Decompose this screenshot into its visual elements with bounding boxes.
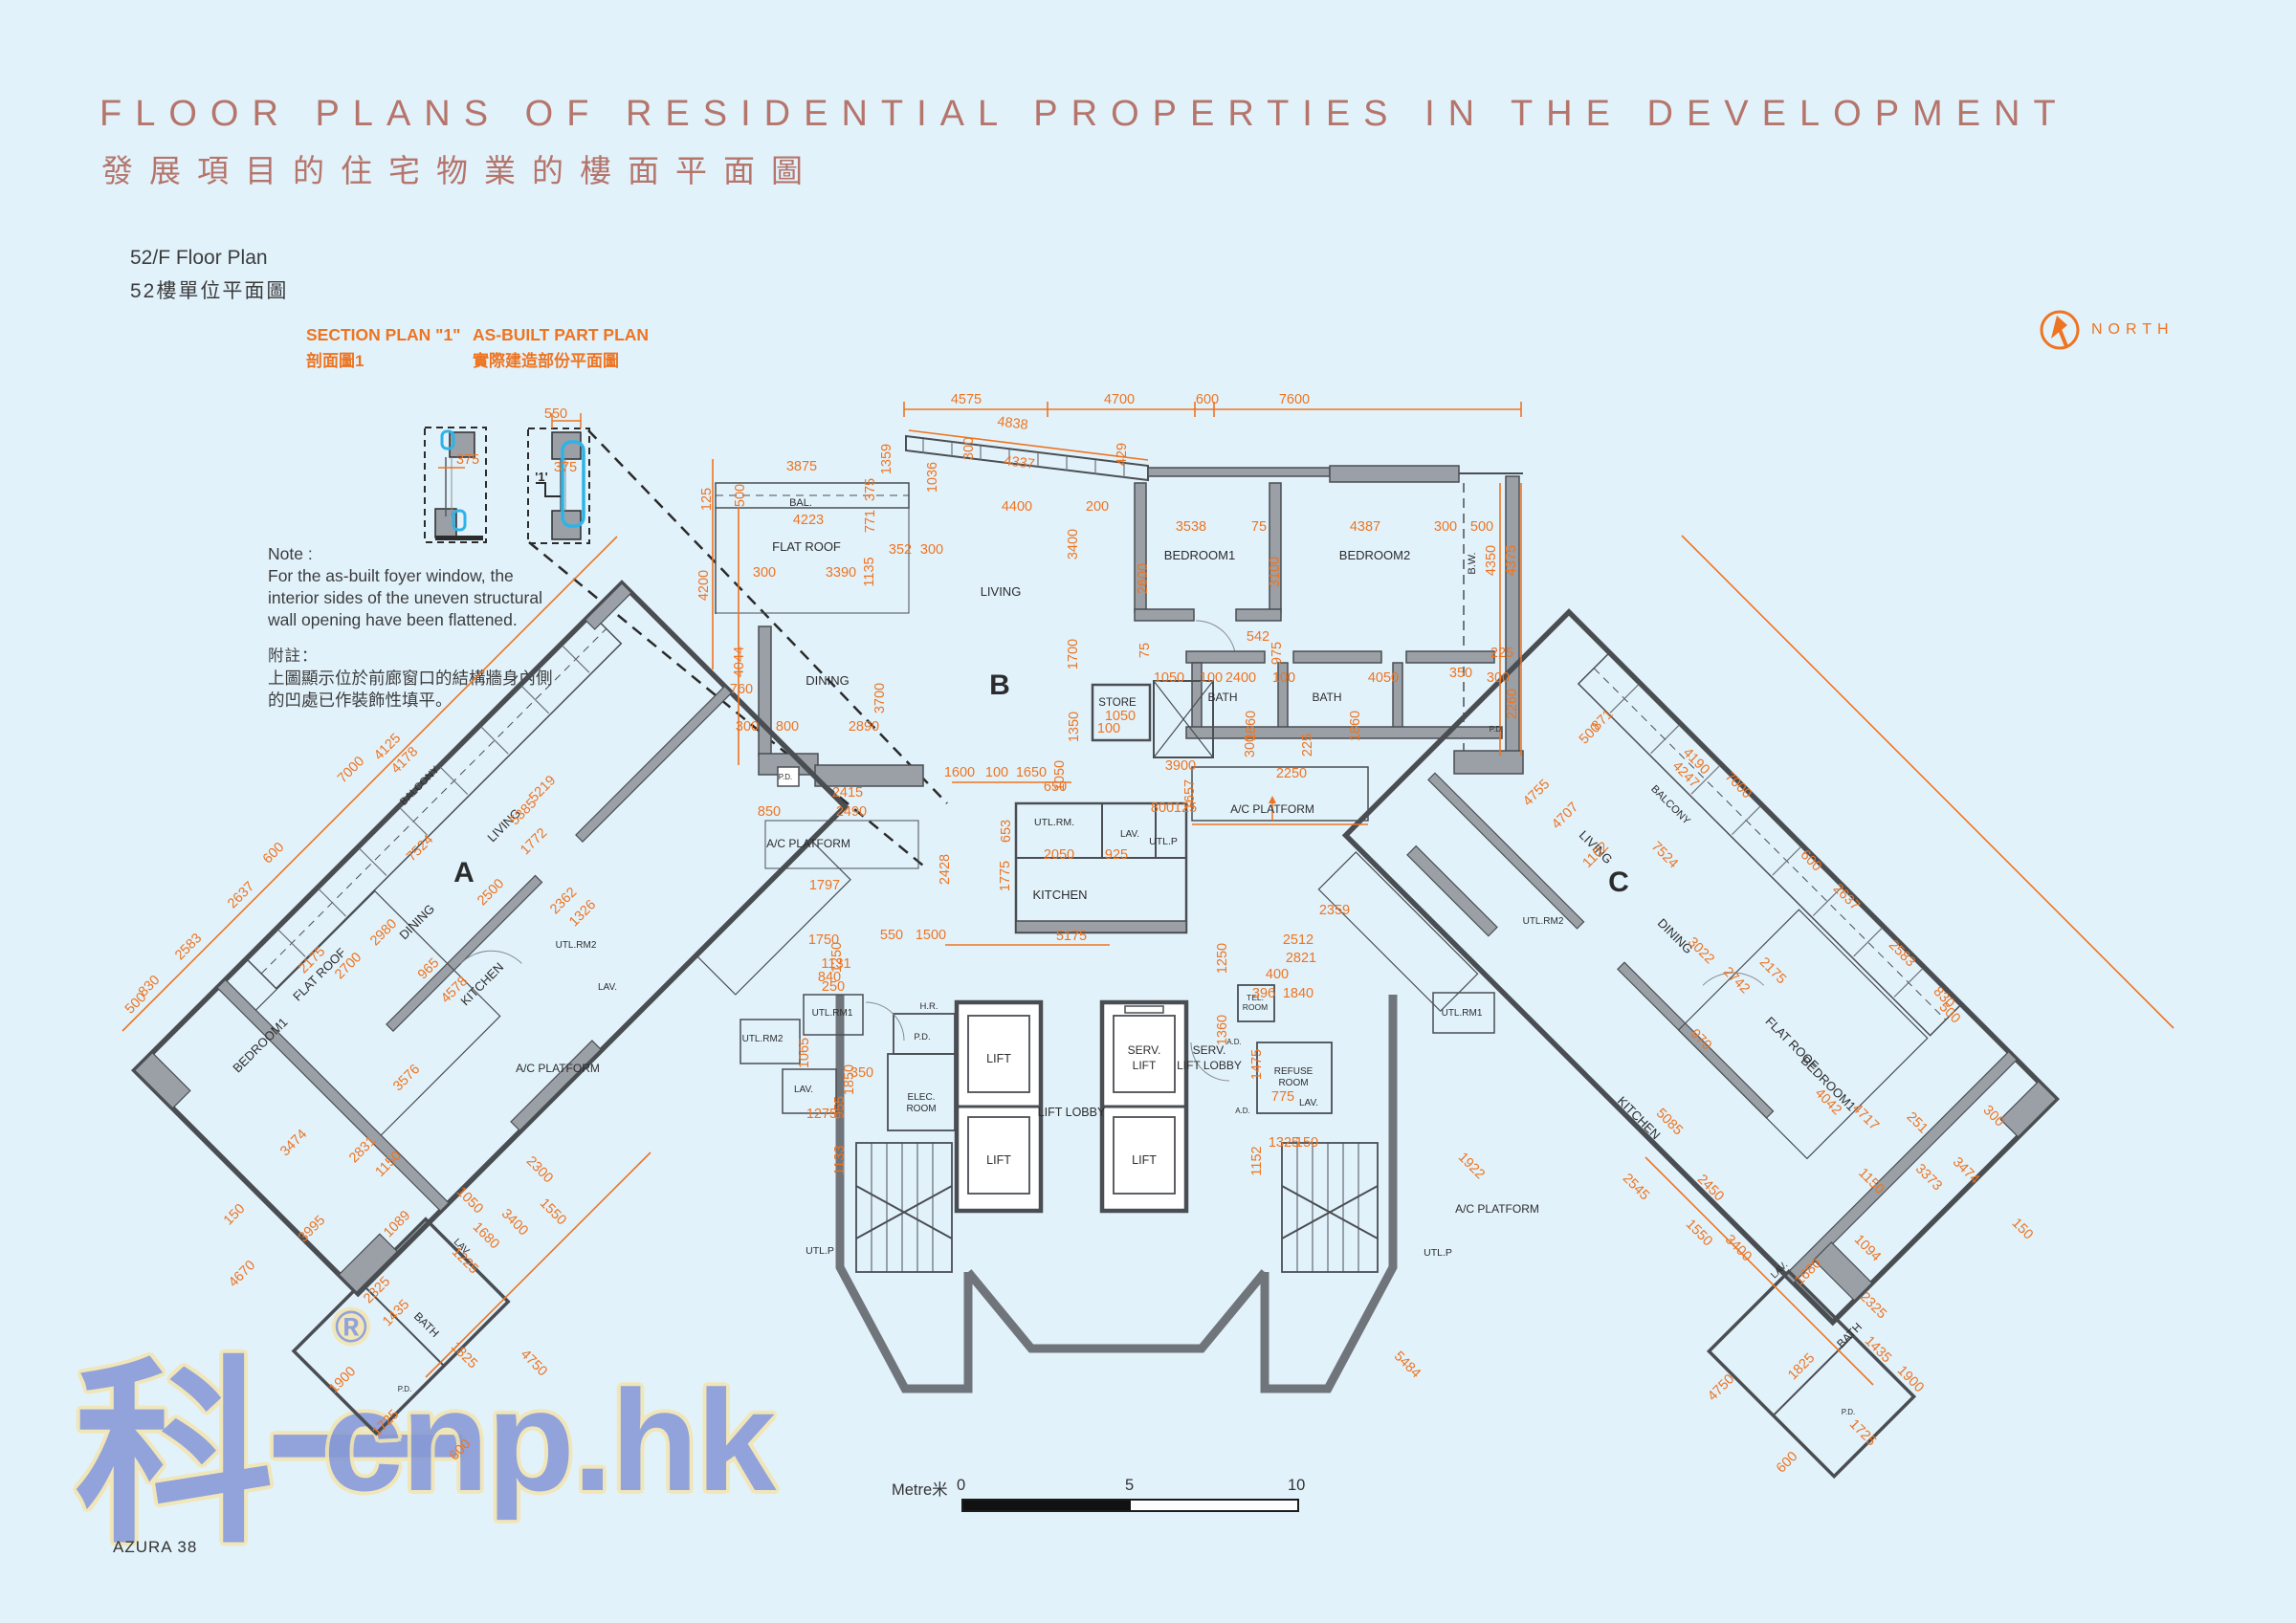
room-label: BATH <box>1834 1320 1865 1350</box>
dim-label: 1359 <box>879 444 894 474</box>
room-label: SERV. <box>1128 1043 1161 1057</box>
dim-label: 4400 <box>1002 499 1032 515</box>
dim-label: 2325 <box>1857 1289 1889 1322</box>
dim-label: 2512 <box>1283 932 1314 948</box>
dim-label: 5219 <box>526 773 559 805</box>
room-label: FLAT ROOF <box>772 539 841 554</box>
dim-label: 1435 <box>380 1297 412 1329</box>
dim-label: 2600 <box>1136 563 1151 594</box>
dim-label: 600 <box>260 840 287 866</box>
dim-label: 300 <box>1434 519 1457 535</box>
dim-label: 1657 <box>1182 779 1198 810</box>
dim-label: 375 <box>863 478 878 501</box>
scale-bar <box>961 1499 1299 1512</box>
dim-label: 3995 <box>296 1213 328 1245</box>
room-label: A <box>453 857 475 888</box>
dim-label: 1050 <box>453 1184 486 1217</box>
scale-bar-fill <box>963 1501 1131 1510</box>
dim-label: 3700 <box>872 683 888 713</box>
dim-label: 4707 <box>1549 800 1581 832</box>
dim-label: 251 <box>1904 1109 1931 1136</box>
dim-label: 1135 <box>862 557 877 586</box>
room-label: UTL.RM2 <box>1523 916 1564 927</box>
room-label: BATH <box>411 1309 442 1340</box>
dim-label: 2400 <box>1225 670 1256 686</box>
dim-label: 2980 <box>367 916 400 949</box>
dim-label: 350 <box>850 1065 873 1081</box>
project-name: AZURA 38 <box>113 1538 197 1557</box>
dim-label: 2742 <box>1720 964 1753 997</box>
room-label: BALCONY <box>1648 783 1692 827</box>
dim-label: 2250 <box>1276 766 1307 781</box>
dim-label: 2300 <box>523 1153 556 1186</box>
dim-label: 4050 <box>1368 670 1399 686</box>
dim-label: 75 <box>1137 643 1153 658</box>
room-label: STORE <box>1098 697 1137 709</box>
dim-label: 1225 <box>449 1244 481 1277</box>
room-label: ROOM <box>906 1104 936 1114</box>
dim-label: 550 <box>880 928 903 943</box>
dim-label: 396 <box>1252 986 1275 1001</box>
dim-label: 2821 <box>1286 951 1316 966</box>
dim-label: 375 <box>456 452 479 468</box>
scale-tick-5: 5 <box>1125 1477 1134 1495</box>
room-label: LIFT <box>1133 1059 1157 1072</box>
dim-label: 3474 <box>1950 1154 1982 1187</box>
dim-label: 1250 <box>1215 943 1230 974</box>
dim-label: 653 <box>999 820 1014 843</box>
dim-label: 4750 <box>518 1347 550 1379</box>
room-label: BAL. <box>789 497 812 509</box>
dim-label: 1250 <box>829 942 845 973</box>
dim-label: 925 <box>1105 847 1128 863</box>
dim-label: 4044 <box>732 647 747 677</box>
dim-label: 550 <box>544 406 567 422</box>
dim-label: 300 <box>1487 670 1510 686</box>
room-label: UTL.RM1 <box>1442 1008 1483 1019</box>
dim-label: 150 <box>2009 1216 2036 1242</box>
dim-label: 300 <box>753 565 776 581</box>
dim-label: 7000 <box>335 754 367 786</box>
room-label: KITCHEN <box>1032 888 1087 902</box>
dim-label: 1650 <box>1016 765 1047 780</box>
dim-label: 3400 <box>1066 529 1081 559</box>
dim-label: 775 <box>1271 1089 1294 1105</box>
room-label: BEDROOM2 <box>1339 548 1410 562</box>
room-label: UTL.RM2 <box>556 940 597 951</box>
dim-label: 1922 <box>1455 1150 1488 1182</box>
asbuilt-detail <box>528 413 947 866</box>
room-label: A/C PLATFORM <box>1230 802 1314 816</box>
room-label: LIFT <box>986 1052 1011 1065</box>
dim-label: 7600 <box>1279 392 1310 407</box>
dim-label: 300 <box>1980 1103 2007 1130</box>
dim-label: 300 <box>961 437 977 460</box>
room-label: DINING <box>396 901 437 942</box>
dim-label: 7524 <box>1648 839 1681 871</box>
dim-label: 3100 <box>1268 557 1283 587</box>
dim-label: 1900 <box>326 1364 359 1396</box>
floor-plan-drawing: ABCBAL.FLAT ROOFLIVINGDININGBEDROOM1BEDR… <box>0 0 2296 1623</box>
dim-label: 2637 <box>225 879 257 911</box>
dim-label: 2545 <box>1620 1171 1652 1203</box>
dim-label: 200 <box>1086 499 1109 515</box>
room-label: UTL.RM2 <box>742 1034 784 1044</box>
room-label: B <box>989 669 1010 701</box>
room-label: A/C PLATFORM <box>766 837 850 850</box>
dim-label: 375 <box>554 460 577 475</box>
dim-label: 1094 <box>1851 1232 1884 1264</box>
room-label: P.D. <box>1842 1408 1856 1416</box>
dim-label: 100 <box>1272 670 1295 686</box>
scale-tick-10: 10 <box>1288 1477 1305 1495</box>
dim-label: 975 <box>1269 642 1285 665</box>
dim-label: 3474 <box>277 1127 310 1159</box>
room-label: UTL.P <box>1424 1247 1452 1259</box>
dim-label: 1275 <box>806 1107 837 1122</box>
dim-label: 1772 <box>518 825 550 858</box>
dim-label: 4375 <box>1504 545 1519 576</box>
room-label: LIVING <box>981 584 1022 599</box>
dim-label: 3373 <box>1912 1161 1945 1194</box>
dim-label: 600 <box>1196 392 1219 407</box>
room-label: LAV. <box>1299 1098 1318 1108</box>
room-label: A.D. <box>1235 1107 1250 1115</box>
dim-label: 1600 <box>944 765 975 780</box>
dim-label: 352 <box>889 542 912 558</box>
room-label: REFUSE <box>1274 1066 1314 1077</box>
dim-label: 1065 <box>797 1038 812 1068</box>
dim-label: 2415 <box>832 785 863 801</box>
room-label: P.D. <box>1490 725 1504 734</box>
floor-plan-page: 科一 ® cnp.hk FLOOR PLANS OF RESIDENTIAL P… <box>0 0 2296 1623</box>
dim-label: 4337 <box>1004 453 1036 472</box>
dim-label: 2890 <box>849 719 879 735</box>
dim-label: 5175 <box>1056 929 1087 944</box>
dim-label: 1775 <box>998 861 1013 891</box>
dim-label: 250 <box>822 979 845 995</box>
dim-label: 2260 <box>1505 689 1520 719</box>
dim-label: 4700 <box>1104 392 1135 407</box>
room-label: A/C PLATFORM <box>1455 1202 1539 1216</box>
dim-label: 2490 <box>836 804 867 820</box>
dim-label: 4575 <box>951 392 982 407</box>
dim-label: 225 <box>1300 734 1315 757</box>
dim-label: 500 <box>733 484 748 507</box>
dim-label: 1700 <box>1066 639 1081 669</box>
dim-label: 7000 <box>1722 769 1755 801</box>
dim-label: 850 <box>758 804 781 820</box>
section-plan-detail <box>425 428 486 542</box>
dim-label: 7524 <box>404 832 436 865</box>
room-label: LAV. <box>794 1085 813 1095</box>
dim-label: 600 <box>1798 847 1824 874</box>
room-label: UTL.RM. <box>1034 817 1074 828</box>
dim-label: 300 <box>920 542 943 558</box>
dim-label: 600 <box>447 1437 474 1463</box>
dim-label: 3538 <box>1176 519 1206 535</box>
room-label: LIFT <box>1132 1153 1157 1167</box>
dim-label: 800 <box>776 719 799 735</box>
dim-label: 4717 <box>1849 1101 1882 1133</box>
dim-label: 2359 <box>1319 903 1350 918</box>
dim-label: 1360 <box>1215 1015 1230 1045</box>
dim-label: 600 <box>1774 1449 1800 1476</box>
dim-label: 100 <box>1097 721 1120 736</box>
dim-label: 300 <box>1243 735 1258 757</box>
dim-label: 4387 <box>1350 519 1380 535</box>
dim-label: 3875 <box>786 459 817 474</box>
dim-label: 4755 <box>1520 777 1553 809</box>
room-label: ELEC. <box>908 1092 936 1103</box>
dim-label: 542 <box>1247 629 1269 645</box>
dim-label: 500 <box>1470 519 1493 535</box>
dim-label: 75 <box>1251 519 1267 535</box>
dim-label: 2428 <box>938 854 953 885</box>
room-label: UTL.P <box>806 1245 834 1257</box>
dim-label: 760 <box>730 682 753 697</box>
scale-tick-0: 0 <box>957 1477 965 1495</box>
room-label: H.R. <box>920 1001 938 1012</box>
dim-label: 2500 <box>475 876 507 909</box>
dim-label: 4838 <box>997 414 1029 433</box>
room-label: LIFT LOBBY <box>1038 1106 1106 1119</box>
room-label: C <box>1608 866 1629 898</box>
room-label: B.W. <box>1467 552 1478 574</box>
dim-label: 3576 <box>390 1062 423 1094</box>
dim-label: 4350 <box>1484 545 1499 576</box>
room-label: P.D. <box>398 1385 412 1393</box>
room-label: P.D. <box>914 1032 930 1042</box>
room-label: UTL.P <box>1149 836 1178 847</box>
room-label: ROOM <box>1243 1002 1268 1012</box>
dim-label: 4200 <box>696 570 712 601</box>
dim-label: 150 <box>1295 1135 1318 1151</box>
dim-label: 429 <box>1115 443 1130 466</box>
dim-label: 1050 <box>1154 670 1184 686</box>
room-label: '1' <box>535 470 547 484</box>
dim-label: 1825 <box>1785 1350 1818 1383</box>
dim-label: 1550 <box>537 1195 569 1228</box>
room-label: LAV. <box>1120 829 1139 840</box>
room-label: A/C PLATFORM <box>516 1062 600 1075</box>
dim-label: 1725 <box>1846 1416 1879 1449</box>
dim-label: 1797 <box>809 878 840 893</box>
dim-label: 771 <box>863 510 878 533</box>
dim-label: 100 <box>1200 670 1223 686</box>
room-label: BATH <box>1312 691 1341 704</box>
dim-label: 2050 <box>1044 847 1074 863</box>
room-label: BEDROOM1 <box>1164 548 1235 562</box>
dim-label: 150 <box>221 1201 248 1228</box>
dim-label: 800 <box>1151 801 1174 816</box>
room-label: DINING <box>806 673 850 688</box>
dim-label: 225 <box>1490 646 1513 661</box>
dim-label: 1500 <box>916 928 946 943</box>
dim-label: 100 <box>985 765 1008 780</box>
dim-label: 1050 <box>1052 760 1068 791</box>
unit-a-walls <box>74 583 924 1434</box>
dim-label: 1475 <box>1249 1049 1265 1080</box>
dim-label: 300 <box>736 719 759 735</box>
dim-label: 350 <box>1449 666 1472 681</box>
dim-label: 4223 <box>793 513 824 528</box>
room-label: LIFT <box>986 1153 1011 1167</box>
room-label: P.D. <box>779 773 793 781</box>
dim-label: 1840 <box>1283 986 1314 1001</box>
dim-label: 3390 <box>826 565 856 581</box>
room-label: LAV. <box>598 982 617 993</box>
dim-label: 1133 <box>832 1145 848 1174</box>
dim-label: 1036 <box>925 462 940 493</box>
room-label: LIFT LOBBY <box>1177 1059 1242 1072</box>
room-label: ROOM <box>1278 1078 1308 1088</box>
dim-label: 3400 <box>498 1206 531 1239</box>
dim-label: 1350 <box>1067 712 1082 742</box>
room-label: UTL.RM1 <box>812 1008 853 1019</box>
dim-label: 2583 <box>172 931 205 963</box>
core-walls <box>740 985 1494 1389</box>
dim-label: 1152 <box>1249 1146 1265 1175</box>
dim-label: 400 <box>1266 967 1289 982</box>
dim-label: 1860 <box>1348 711 1363 741</box>
scale-unit-label: Metre米 <box>892 1477 948 1500</box>
dim-label: 1680 <box>470 1219 502 1252</box>
dim-label: 5484 <box>1391 1349 1424 1381</box>
room-label: BATH <box>1207 691 1237 704</box>
dim-label: 4670 <box>226 1258 258 1290</box>
dim-label: 125 <box>699 488 715 511</box>
dim-label: 3900 <box>1165 758 1196 774</box>
